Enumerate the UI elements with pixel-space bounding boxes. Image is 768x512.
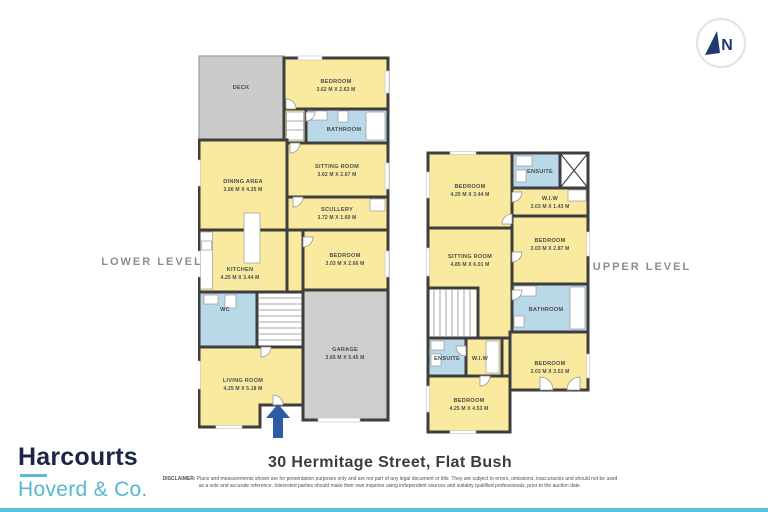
- room-label: BEDROOM: [535, 361, 566, 367]
- room-shape: [428, 376, 510, 432]
- brand-bottom-bar: [0, 508, 768, 512]
- room-wc: WC: [199, 292, 257, 347]
- window: [385, 71, 389, 93]
- room-label: BEDROOM: [454, 398, 485, 404]
- room-label: BEDROOM: [330, 253, 361, 259]
- room-label: BEDROOM: [535, 238, 566, 244]
- window: [427, 172, 430, 198]
- room-dims: 3.03 M X 1.43 M: [531, 204, 570, 210]
- room-label: WC: [220, 307, 230, 313]
- room-dims: 3.03 M X 2.87 M: [531, 246, 570, 252]
- room-dims: 3.65 M X 5.45 M: [326, 355, 365, 361]
- room-label: DINING AREA: [223, 179, 263, 185]
- room-label: ENSUITE: [434, 356, 460, 362]
- room-bedroom-nw: BEDROOM 4.25 M X 3.44 M: [428, 153, 512, 228]
- room-label: BATHROOM: [529, 307, 564, 313]
- hallway: [287, 230, 303, 292]
- bathtub-fixture: [570, 287, 585, 329]
- window: [298, 56, 322, 60]
- room-dims: 3.03 M X 3.52 M: [531, 369, 570, 375]
- stairs-lower: [257, 292, 303, 347]
- window: [427, 386, 430, 412]
- room-dims: 4.85 M X 6.01 M: [451, 262, 490, 268]
- upper-level-title: UPPER LEVEL: [582, 261, 702, 273]
- hall-closet: [284, 109, 306, 143]
- vanity-fixture: [516, 156, 532, 166]
- room-wiw-bottom: W.I.W: [466, 338, 502, 376]
- room-dims: 4.25 M X 3.44 M: [221, 275, 260, 281]
- room-ensuite-top: ENSUITE: [512, 153, 560, 188]
- window: [198, 160, 201, 186]
- room-label: W.I.W: [472, 356, 489, 362]
- basin-fixture: [204, 295, 218, 304]
- compass-north-icon: N: [694, 16, 748, 70]
- sink-fixture: [202, 241, 212, 250]
- room-label: SCULLERY: [321, 207, 353, 213]
- bathtub-fixture: [366, 112, 385, 140]
- room-dims: 3.03 M X 2.66 M: [326, 261, 365, 267]
- room-garage: GARAGE 3.65 M X 5.45 M: [303, 290, 388, 420]
- stairs-shape: [428, 288, 478, 338]
- window: [587, 232, 590, 256]
- room-label: ENSUITE: [527, 169, 553, 175]
- room-ensuite-bottom: ENSUITE: [428, 338, 466, 376]
- room-shape: [199, 56, 284, 140]
- room-wiw-top: W.I.W 3.03 M X 1.43 M: [512, 188, 588, 216]
- stairs-upper: [428, 288, 478, 338]
- disclaimer-body: Plans and measurements shown are for pre…: [197, 476, 617, 489]
- room-shape: [287, 143, 388, 197]
- floor-plan-upper: BEDROOM 4.25 M X 3.44 M ENSUITE W.I.W 3.…: [422, 148, 590, 436]
- appliance-fixture: [370, 199, 385, 211]
- room-label: BATHROOM: [327, 127, 362, 133]
- agency-tagline: Hoverd & Co.: [18, 478, 148, 502]
- property-address: 30 Hermitage Street, Flat Bush: [188, 454, 592, 472]
- window: [427, 248, 430, 276]
- wardrobe-fixture: [568, 190, 586, 201]
- room-bedroom-mid: BEDROOM 3.03 M X 2.66 M: [303, 230, 388, 290]
- kitchen-island: [244, 213, 260, 263]
- garage-door: [318, 418, 360, 422]
- agency-logo: Harcourts Hoverd & Co.: [18, 444, 148, 502]
- agency-name: Harcourts: [18, 444, 148, 472]
- toilet-fixture: [514, 316, 524, 327]
- vanity-fixture: [431, 341, 444, 350]
- compass-n-label: N: [721, 37, 733, 54]
- room-label: SITTING ROOM: [315, 164, 359, 170]
- room-scullery: SCULLERY 3.72 M X 1.60 M: [287, 197, 388, 230]
- room-dims: 3.66 M X 4.25 M: [224, 187, 263, 193]
- window: [385, 251, 389, 277]
- room-dims: 4.25 M X 3.44 M: [451, 192, 490, 198]
- stairs-shape: [257, 292, 303, 347]
- room-bathroom: BATHROOM: [512, 284, 588, 332]
- room-label: W.I.W: [542, 196, 559, 202]
- room-shape: [303, 230, 388, 290]
- logo-underline: [20, 474, 47, 478]
- window: [216, 426, 242, 429]
- room-deck: DECK: [199, 56, 284, 140]
- room-label: GARAGE: [332, 347, 358, 353]
- room-shape: [428, 153, 512, 228]
- window: [450, 152, 476, 155]
- room-dims: 3.62 M X 2.63 M: [317, 87, 356, 93]
- disclaimer-text: DISCLAIMER: Plans and measurements shown…: [162, 476, 618, 490]
- room-bedroom-s: BEDROOM 4.25 M X 4.53 M: [428, 376, 510, 432]
- room-label: LIVING ROOM: [223, 378, 263, 384]
- void-shower: [560, 153, 588, 188]
- room-dims: 3.62 M X 2.67 M: [318, 172, 357, 178]
- room-sitting-room: SITTING ROOM 3.62 M X 2.67 M: [287, 143, 388, 197]
- room-label: KITCHEN: [227, 267, 254, 273]
- window: [198, 361, 201, 389]
- room-bedroom-top: BEDROOM 3.62 M X 2.63 M: [284, 58, 388, 109]
- room-bathroom: BATHROOM: [306, 109, 388, 143]
- room-dims: 3.72 M X 1.60 M: [318, 215, 357, 221]
- window: [385, 163, 389, 189]
- toilet-fixture: [516, 170, 526, 182]
- room-shape: [287, 230, 303, 292]
- floor-plan-lower: DECK BEDROOM 3.62 M X 2.63 M BATHROOM DI…: [198, 55, 390, 440]
- toilet-fixture: [338, 111, 348, 122]
- room-label: DECK: [233, 85, 250, 91]
- room-label: SITTING ROOM: [448, 254, 492, 260]
- room-dims: 4.25 M X 5.18 M: [224, 386, 263, 392]
- window: [450, 431, 476, 434]
- window: [587, 354, 590, 378]
- entry-arrow-icon: [266, 404, 290, 438]
- closet-fixture: [287, 112, 304, 140]
- room-label: BEDROOM: [455, 184, 486, 190]
- room-bedroom-e: BEDROOM 3.03 M X 2.87 M: [512, 216, 588, 284]
- room-dining-area: DINING AREA 3.66 M X 4.25 M: [199, 140, 287, 230]
- room-dims: 4.25 M X 4.53 M: [450, 406, 489, 412]
- room-label: BEDROOM: [321, 79, 352, 85]
- lower-level-title: LOWER LEVEL: [92, 256, 212, 268]
- disclaimer-label: DISCLAIMER:: [163, 476, 196, 482]
- room-shape: [199, 140, 287, 230]
